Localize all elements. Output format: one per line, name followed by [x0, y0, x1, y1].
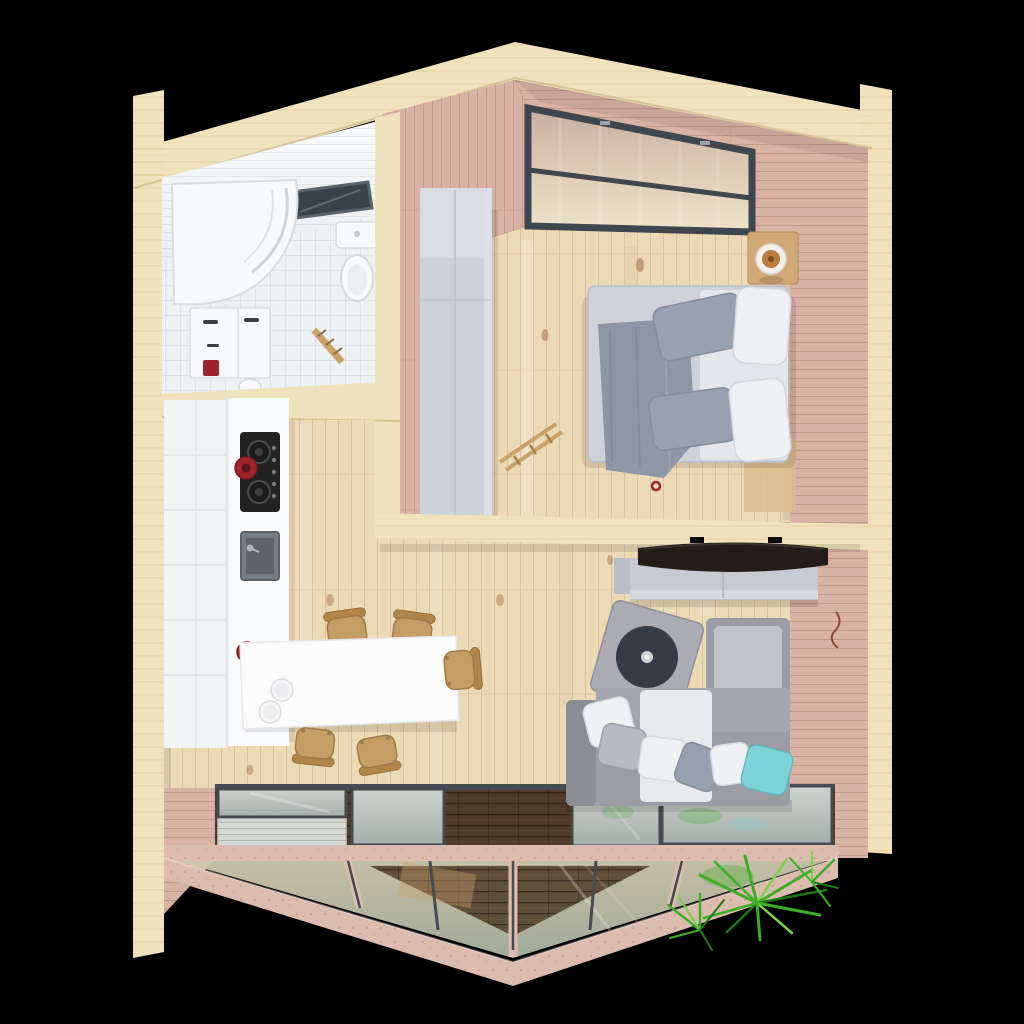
tv-unit [614, 537, 828, 607]
glass-panel [352, 789, 444, 845]
double-bed [588, 286, 792, 478]
bedside-table [748, 232, 798, 284]
console-front-edge [630, 590, 818, 600]
chair [292, 727, 338, 767]
kitchen-sink [241, 532, 279, 580]
island-table [240, 636, 459, 729]
floorplan-render [0, 0, 1024, 1024]
chair [354, 734, 402, 777]
glass-reflection-teal [730, 817, 766, 831]
toilet-seat-inner [347, 264, 367, 296]
toilet-flush-button [354, 231, 360, 237]
glass-panel [218, 789, 346, 817]
wardrobe [420, 188, 492, 518]
red-accent-box [203, 360, 219, 376]
bedroom-hall-wall [375, 112, 400, 537]
red-pot [235, 457, 257, 479]
chair [443, 647, 483, 692]
console-shadow [630, 599, 818, 607]
console-side-box [614, 558, 632, 594]
